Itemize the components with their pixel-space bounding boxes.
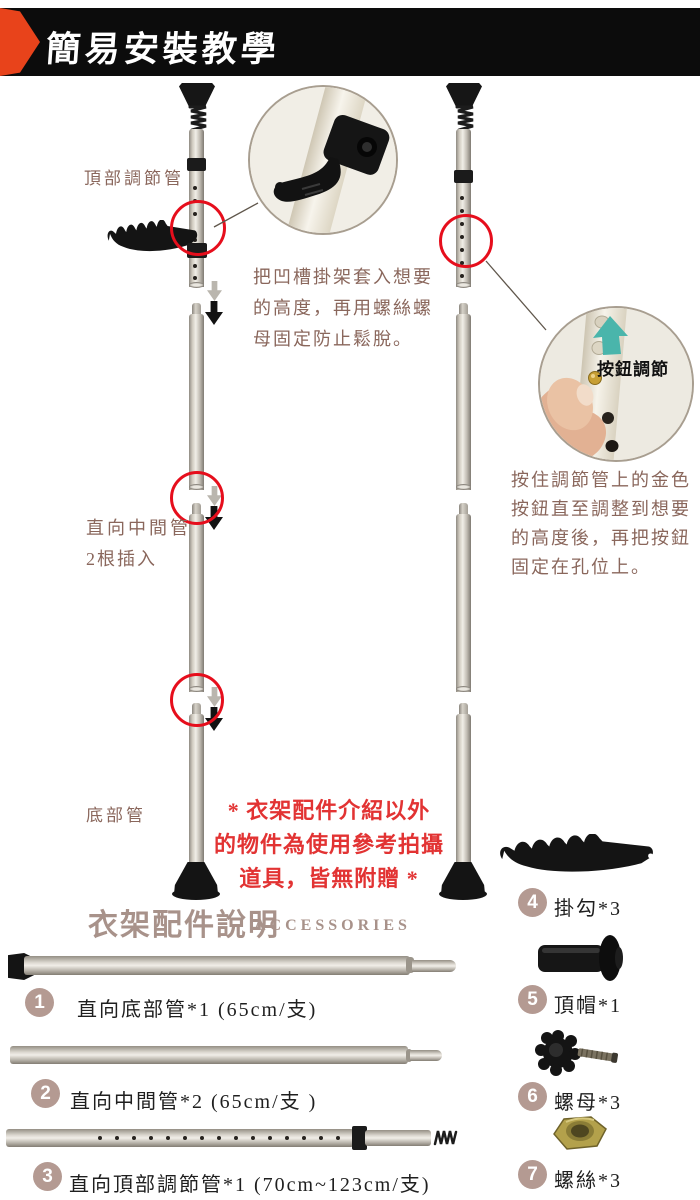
item1-pole-body bbox=[24, 956, 410, 975]
item3-hole bbox=[285, 1136, 289, 1140]
hook-closeup-illustration bbox=[250, 87, 398, 235]
down-arrow-icon bbox=[205, 301, 223, 325]
item3-hole bbox=[251, 1136, 255, 1140]
step2-line: 按鈕直至調整到想要 bbox=[511, 495, 700, 524]
item3-hole bbox=[98, 1136, 102, 1140]
step2-line: 固定在孔位上。 bbox=[511, 553, 700, 582]
item3-hole bbox=[115, 1136, 119, 1140]
disclaimer-line: * 衣架配件介紹以外 bbox=[198, 794, 460, 828]
item2-pole-body bbox=[10, 1046, 408, 1064]
item3-hole bbox=[166, 1136, 170, 1140]
item5-label: 頂帽*1 bbox=[554, 989, 622, 1018]
item5-cap-image bbox=[532, 934, 632, 982]
right-pole-hole bbox=[460, 196, 464, 200]
item1-label: 直向底部管*1 (65cm/支) bbox=[77, 993, 317, 1022]
leader-line-hook-inset bbox=[210, 196, 262, 232]
highlight-circle-joint-2 bbox=[170, 673, 224, 727]
left-pole-hole bbox=[193, 264, 197, 268]
step1-line: 的高度，再用螺絲螺 bbox=[253, 293, 443, 324]
right-pole-hole bbox=[460, 209, 464, 213]
page-title: 簡易安裝教學 bbox=[44, 21, 282, 72]
left-pole-tube-opening bbox=[189, 282, 204, 288]
button-adjust-illustration bbox=[540, 308, 694, 462]
left-pole-band bbox=[187, 158, 206, 171]
accessories-heading: 衣架配件說明 bbox=[88, 900, 280, 944]
down-arrow-icon bbox=[207, 281, 222, 301]
item3-hole bbox=[200, 1136, 204, 1140]
item6-knob-image bbox=[530, 1028, 640, 1078]
header-accent-chevron bbox=[0, 8, 40, 76]
item3-spring bbox=[432, 1127, 458, 1149]
item3-hole bbox=[217, 1136, 221, 1140]
step2-line: 的高度後，再把按鈕 bbox=[511, 524, 700, 553]
label-middle-tube-line2: 2根插入 bbox=[86, 545, 157, 571]
step1-text: 把凹槽掛架套入想要 的高度，再用螺絲螺 母固定防止鬆脫。 bbox=[253, 262, 443, 355]
item3-hole bbox=[302, 1136, 306, 1140]
item6-number: 6 bbox=[518, 1082, 547, 1111]
item4-number: 4 bbox=[518, 888, 547, 917]
item4-hook-image bbox=[494, 834, 668, 880]
right-pole-hole bbox=[460, 274, 464, 278]
item3-hole bbox=[319, 1136, 323, 1140]
item3-number: 3 bbox=[33, 1162, 62, 1191]
item1-number: 1 bbox=[25, 988, 54, 1017]
step2-text: 按住調節管上的金色 按鈕直至調整到想要 的高度後，再把按鈕 固定在孔位上。 bbox=[511, 466, 700, 582]
header-bar: 簡易安裝教學 bbox=[0, 8, 700, 76]
label-bottom-tube: 底部管 bbox=[86, 801, 146, 826]
disclaimer-line: 的物件為使用參考拍攝 bbox=[198, 828, 460, 862]
right-pole-band bbox=[454, 170, 473, 183]
item3-hole bbox=[336, 1136, 340, 1140]
left-pole-middle-tube-2 bbox=[189, 514, 204, 692]
item3-hole bbox=[234, 1136, 238, 1140]
inset-photo-hook-closeup bbox=[248, 85, 398, 235]
label-top-tube: 頂部調節管 bbox=[84, 164, 184, 189]
item7-label: 螺絲*3 bbox=[554, 1164, 622, 1193]
item3-hole bbox=[183, 1136, 187, 1140]
step1-line: 母固定防止鬆脫。 bbox=[253, 324, 443, 355]
right-pole-middle-tube-2 bbox=[456, 514, 471, 692]
item3-pole-end bbox=[365, 1130, 431, 1146]
right-pole-tube-opening bbox=[456, 484, 471, 490]
item7-nut-image bbox=[544, 1112, 618, 1154]
right-pole-tube-opening bbox=[456, 282, 471, 288]
item3-hole bbox=[149, 1136, 153, 1140]
button-adjust-label: 按鈕調節 bbox=[597, 355, 669, 380]
item7-number: 7 bbox=[518, 1160, 547, 1189]
step2-line: 按住調節管上的金色 bbox=[511, 466, 700, 495]
item5-number: 5 bbox=[518, 985, 547, 1014]
item3-hole bbox=[268, 1136, 272, 1140]
accessories-heading-en: ACCESSORIES bbox=[254, 917, 411, 935]
item6-label: 螺母*3 bbox=[554, 1086, 622, 1115]
step1-line: 把凹槽掛架套入想要 bbox=[253, 262, 443, 293]
item3-hole bbox=[132, 1136, 136, 1140]
item2-number: 2 bbox=[31, 1079, 60, 1108]
disclaimer-text: * 衣架配件介紹以外 的物件為使用參考拍攝 道具，皆無附贈 * bbox=[198, 794, 460, 896]
item1-pole-end bbox=[412, 960, 456, 972]
right-pole-spring bbox=[453, 104, 477, 132]
inset-photo-button-adjust: 按鈕調節 bbox=[538, 306, 694, 462]
item3-label: 直向頂部調節管*1 (70cm~123cm/支) bbox=[69, 1168, 431, 1197]
item2-pole-end bbox=[410, 1050, 442, 1061]
left-pole-spring bbox=[186, 104, 210, 132]
right-pole-middle-tube-1 bbox=[456, 314, 471, 490]
item4-label: 掛勾*3 bbox=[554, 892, 622, 921]
leader-line-button-inset bbox=[482, 256, 550, 334]
left-pole-middle-tube-1 bbox=[189, 314, 204, 490]
item2-label: 直向中間管*2 (65cm/支 ) bbox=[70, 1085, 317, 1114]
right-pole-tube-opening bbox=[456, 686, 471, 692]
disclaimer-line: 道具，皆無附贈 * bbox=[198, 862, 460, 896]
left-pole-hole bbox=[193, 186, 197, 190]
label-middle-tube-line1: 直向中間管 bbox=[86, 514, 191, 540]
left-pole-hole bbox=[193, 276, 197, 280]
page: 簡易安裝教學 bbox=[0, 0, 700, 1200]
